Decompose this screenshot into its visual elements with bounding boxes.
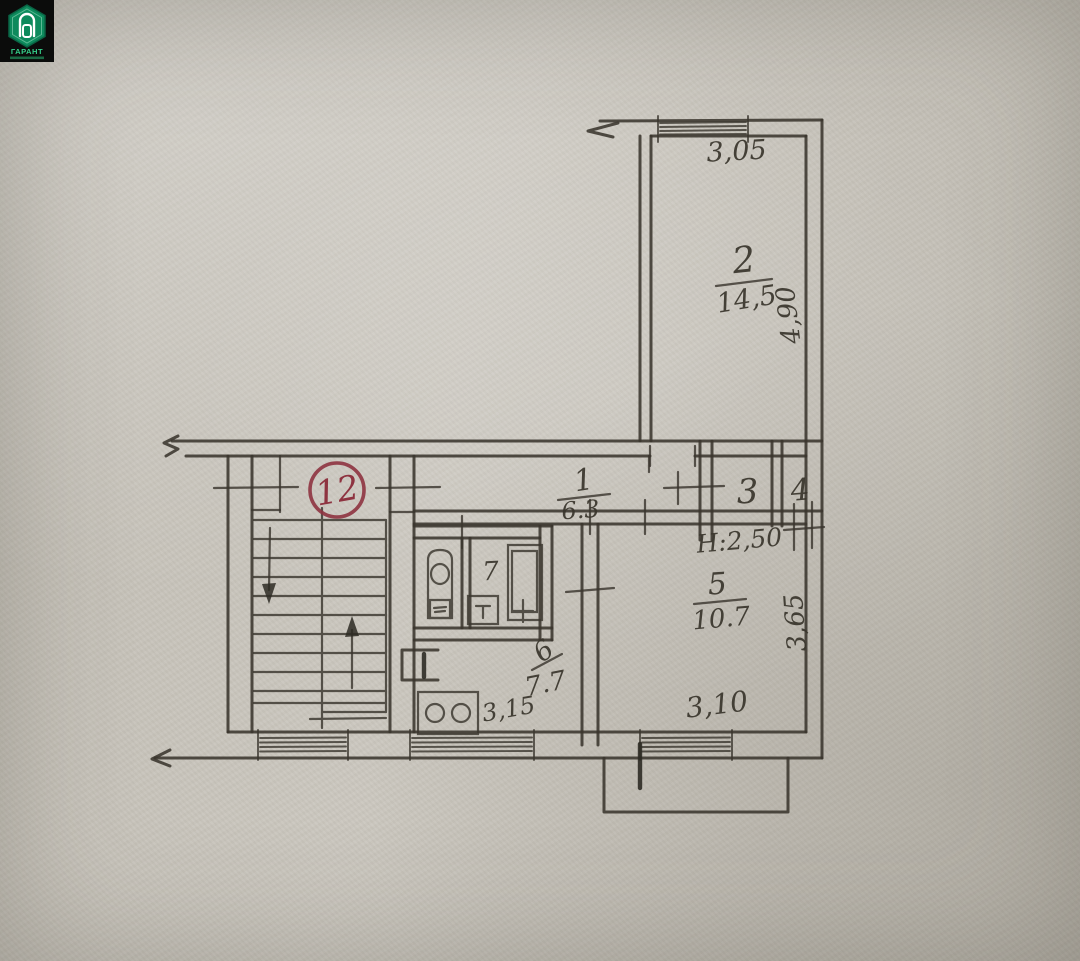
room-5-area: 10.7 [691,602,752,637]
ceiling-height-note: Н:2,50 [694,522,783,558]
kitchen-6: 6 7.7 3,15 [402,634,569,734]
door-icon [402,650,438,680]
dim-room5-depth: 3,65 [779,593,813,653]
garant-logo: ГАРАНТ [0,0,54,62]
bottom-wall [152,730,822,766]
corridor-wall [164,436,822,472]
dim-kitchen-width: 3,15 [480,691,537,728]
rooms-3-4: 3 4 Н:2,50 [664,441,824,559]
dim-room2-width: 3,05 [706,134,768,168]
dim-room2-depth: 4,90 [771,284,808,346]
sink-icon [468,596,498,624]
room-2-number: 2 [729,239,757,282]
room-2-walls [588,116,822,758]
room-1-area: 6.3 [560,495,600,526]
wall-break-arrow [588,123,618,137]
floor-plan-drawing: 3,05 2 14,5 4,90 [0,0,1080,961]
room-7-number: 7 [482,557,501,588]
bathtub-icon [508,545,542,622]
apartment-number: 12 [312,468,362,515]
logo-subtext-strip [10,57,44,60]
room-5-number: 5 [707,566,728,602]
room-4-number: 4 [788,472,811,509]
logo-brand-text: ГАРАНТ [11,47,43,56]
apartment-number-stamp: 12 [310,463,364,517]
toilet-icon [428,550,452,618]
room-2-labels: 3,05 2 14,5 4,90 [706,134,808,346]
wall-break-icon [164,436,178,456]
room-1-number: 1 [571,462,595,500]
dim-room5-width: 3,10 [684,684,750,724]
balcony [604,744,788,812]
room-3-number: 3 [736,472,759,513]
sanitary-block: 7 [414,516,552,640]
window-icon [258,730,348,760]
window-icon [640,730,732,760]
room-5: 5 10.7 3,65 3,10 [566,524,813,745]
floor-plan-photo: 3,05 2 14,5 4,90 [0,0,1080,961]
stove-icon [418,692,478,734]
stairs-steps [254,508,386,728]
